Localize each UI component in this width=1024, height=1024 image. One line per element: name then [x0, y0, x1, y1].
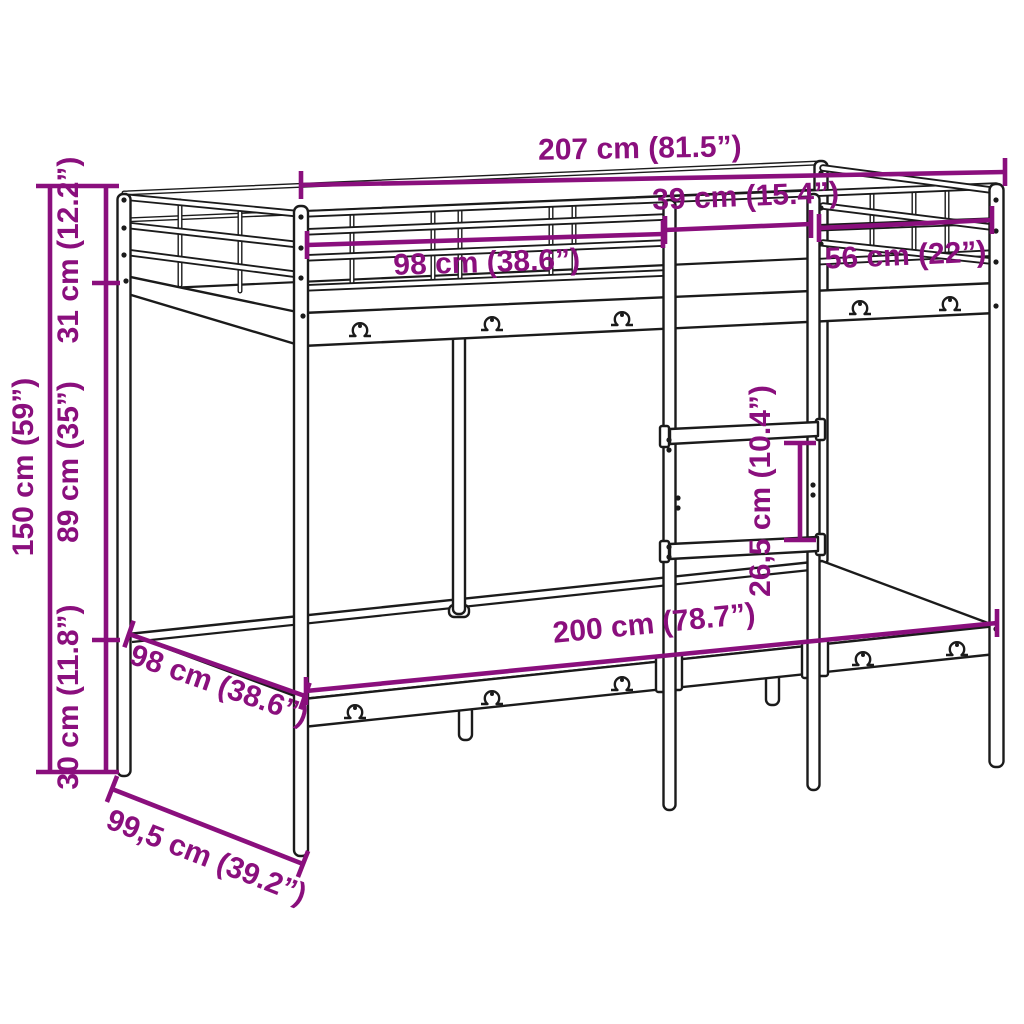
dim-line-ladder-width	[665, 224, 811, 230]
post-front-left	[294, 206, 308, 856]
upper-front-beam	[302, 283, 996, 346]
dim-label-section-right: 56 cm (22”)	[824, 235, 987, 275]
dim-label-total-height: 150 cm (59”)	[7, 378, 40, 556]
ladder-right-rail	[808, 194, 820, 790]
ladder-left-rail	[664, 200, 676, 810]
dimension-labels: 207 cm (81.5”) 98 cm (38.6”) 39 cm (15.4…	[7, 130, 987, 911]
dim-label-total-length: 207 cm (81.5”)	[538, 130, 742, 167]
dim-label-rung-spacing: 26,5 cm (10.4”)	[744, 385, 777, 597]
dim-label-section-left: 98 cm (38.6”)	[393, 243, 581, 282]
diagram-canvas: 207 cm (81.5”) 98 cm (38.6”) 39 cm (15.4…	[0, 0, 1024, 1024]
post-front-right	[990, 184, 1004, 767]
dim-label-clearance-height: 89 cm (35”)	[52, 381, 85, 543]
post-mid-support	[453, 318, 465, 614]
upper-bunk-beam	[302, 283, 996, 346]
dim-label-base-height: 30 cm (11.8”)	[52, 604, 85, 789]
loft-bed-dimension-diagram: 207 cm (81.5”) 98 cm (38.6”) 39 cm (15.4…	[0, 0, 1024, 1024]
rung-bracket	[660, 426, 669, 447]
dim-label-guardrail-height: 31 cm (12.2”)	[52, 157, 85, 344]
